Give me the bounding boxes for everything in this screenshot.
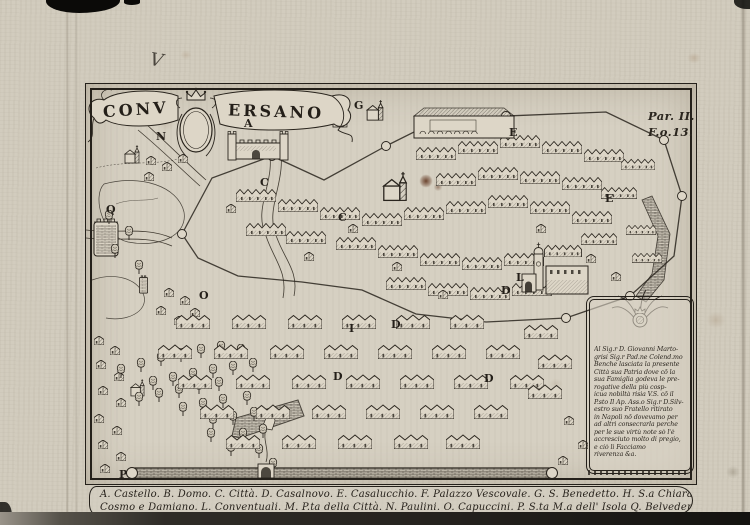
map-letter: L (516, 271, 524, 284)
dedication-line: ad altri consecrarla perche (594, 421, 687, 429)
dedication-line: estro suo Fratello ritirato (594, 406, 687, 414)
plate-number-line-1: Par. II. (648, 108, 695, 124)
city-buildings (226, 136, 662, 301)
dedication-line: sua Famiglia godeva le pre- (594, 376, 687, 384)
dedication-line: rogative della più cosp- (594, 384, 687, 392)
handwritten-mark: V (148, 49, 164, 72)
dedication-line: icua nobiltà risia V.S. cō il (594, 391, 687, 399)
dedication-line: grisi Sig.r Pad.ne Colend.mo (594, 354, 687, 362)
map-letter: A (243, 117, 253, 130)
banner-ribbon: CONV ERSANO (88, 90, 352, 142)
map-letter: G (354, 99, 363, 112)
map-letter: P (119, 468, 127, 481)
map-letter: Q (106, 203, 116, 216)
map-letter: D (333, 370, 343, 383)
map-letter: C (260, 176, 269, 189)
map-letter: D (501, 284, 511, 297)
map-letter: D (484, 372, 494, 385)
plate-number-note: Par. II. F.o.13. (648, 108, 695, 140)
dedication-cartouche: Al Sig.r D. Giovanni Marto- grisi Sig.r … (589, 299, 691, 471)
bottom-wall (127, 464, 558, 479)
map-letter: N (156, 130, 166, 143)
ink-blot-top-left-small (124, 0, 140, 5)
plate-number-line-2: F.o.13. (648, 124, 695, 140)
page-edge-shadow (0, 512, 750, 525)
dedication-line: in Napoli nō dovevamo per (594, 414, 687, 422)
ink-blot-top-left (46, 0, 120, 13)
monastery (414, 108, 514, 138)
dedication-line: Benche lasciata la presente (594, 361, 687, 369)
ink-blot-top-right (734, 0, 750, 9)
dedication-line: P.sto Il Ap. Ass.o Sig.r D.Silv- (594, 399, 687, 407)
map-letter: O (199, 289, 209, 302)
village-northwest (125, 145, 188, 181)
dedication-line: e ciò li Facciamo (594, 444, 687, 452)
map-letter: E (605, 192, 613, 205)
map-letter: D (391, 318, 401, 331)
map-letter: I (349, 322, 354, 335)
banner-text-right: ERSANO (228, 100, 325, 122)
dedication-line: accresciuto molto di pregio, (594, 436, 687, 444)
legend-line-1: A. Castello. B. Domo. C. Città. D. Casal… (100, 488, 684, 501)
borgo-left-edge (94, 336, 144, 473)
map-letter: C (338, 211, 347, 224)
map-letter: E (509, 126, 517, 139)
coat-of-arms (176, 88, 215, 156)
casale-blocks (158, 315, 588, 465)
dedication-line: Città sua Patria dove cō la (594, 369, 687, 377)
dedication-line: riverenza &a. (594, 451, 687, 459)
scanned-page: { "banner": { "left": "CONV", "right": "… (0, 0, 750, 525)
dedication-line: per le sue virtù note sò l'è (594, 429, 687, 437)
map-plate: CONV ERSANO N A G C C E E D L I D D D O (85, 83, 697, 485)
dedication-line: Al Sig.r D. Giovanni Marto- (594, 346, 687, 354)
map-legend: A. Castello. B. Domo. C. Città. D. Casal… (89, 486, 693, 515)
castle (228, 132, 288, 161)
